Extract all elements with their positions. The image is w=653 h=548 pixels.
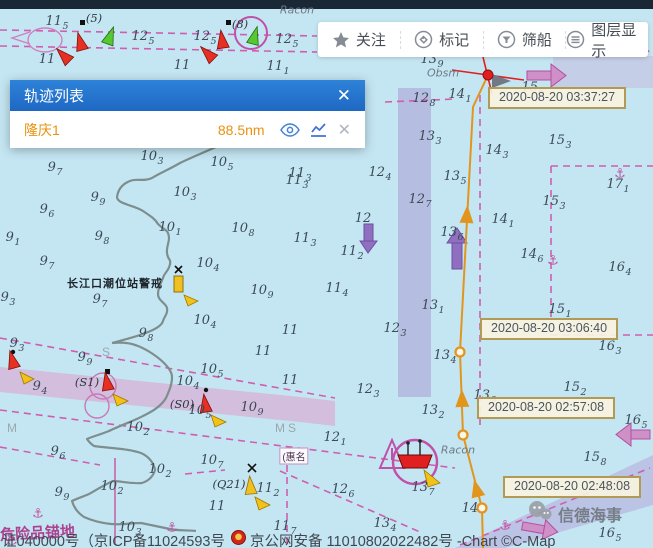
ship-tracking-app: 1151251251251111111139128141156133153143…	[0, 0, 653, 548]
current-position-marker	[452, 57, 524, 94]
layers-icon	[566, 30, 585, 49]
filter-icon	[497, 30, 516, 49]
lavender-patch-top-right	[553, 56, 653, 88]
track-distance: 88.5nm	[218, 122, 265, 138]
tag-icon	[414, 30, 433, 49]
map-toolbar: 关注 标记 筛船 图层显示	[318, 22, 648, 57]
panel-body: 隆庆1 88.5nm ✕	[10, 111, 365, 148]
restricted-band-vertical	[398, 88, 431, 397]
star-icon	[332, 31, 350, 49]
layers-button[interactable]: 图层显示	[566, 22, 648, 57]
track-row[interactable]: 隆庆1 88.5nm ✕	[10, 111, 365, 148]
vessel-name: 隆庆1	[24, 120, 218, 140]
watermark: 信德海事	[527, 500, 622, 527]
follow-button[interactable]: 关注	[318, 22, 400, 57]
panel-header: 轨迹列表 ✕	[10, 80, 365, 111]
mark-label: 标记	[439, 29, 469, 50]
panel-close-icon[interactable]: ✕	[337, 87, 351, 104]
ship-target-symbol	[380, 439, 440, 487]
panel-title: 轨迹列表	[24, 85, 337, 106]
track-list-panel: 轨迹列表 ✕ 隆庆1 88.5nm ✕	[10, 80, 365, 148]
filter-ships-label: 筛船	[522, 29, 552, 50]
flow-arrow-left-right-side	[616, 423, 650, 446]
trend-chart-icon[interactable]	[310, 122, 327, 138]
tidal-arrow-down	[360, 224, 377, 253]
layers-label: 图层显示	[591, 19, 648, 61]
vessel-track	[455, 75, 488, 548]
visibility-eye-icon[interactable]	[280, 123, 300, 137]
watermark-text: 信德海事	[558, 502, 622, 526]
wechat-icon	[527, 500, 553, 527]
tide-station-buoy	[174, 266, 198, 306]
row-close-icon[interactable]: ✕	[338, 120, 351, 140]
q21-buoy	[244, 464, 270, 510]
filter-ships-button[interactable]: 筛船	[484, 22, 566, 57]
channel-buoys-top	[52, 17, 267, 66]
mark-button[interactable]: 标记	[401, 22, 483, 57]
follow-label: 关注	[356, 29, 386, 50]
shoreline	[72, 146, 218, 531]
